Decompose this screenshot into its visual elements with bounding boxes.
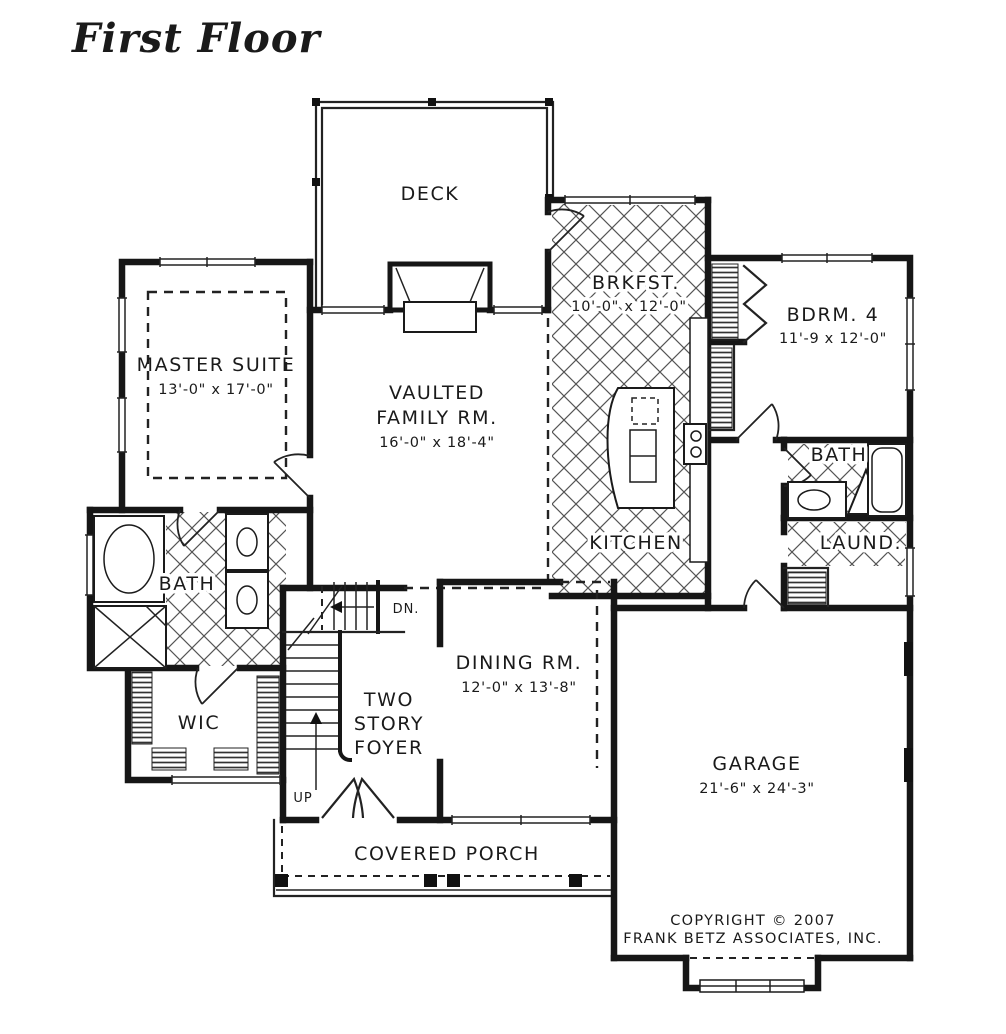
linen-shelves: [710, 348, 732, 428]
deck-post: [312, 178, 320, 186]
window: [452, 815, 590, 825]
window: [117, 398, 127, 452]
window: [160, 257, 255, 267]
porch-post: [569, 874, 582, 887]
porch-post: [424, 874, 437, 887]
wic-shelves: [214, 748, 248, 770]
garage-entry-door: [744, 580, 784, 608]
room-label-laundry: LAUND.: [820, 532, 902, 554]
window: [494, 305, 542, 315]
deck-post: [428, 98, 436, 106]
room-label-wic: WIC: [178, 712, 220, 734]
room-label-foyer-2: STORY: [354, 713, 424, 735]
fireplace: [390, 264, 490, 332]
room-dims-master-suite: 13'-0" x 17'-0": [158, 382, 273, 398]
room-label-foyer-1: TWO: [363, 689, 414, 711]
deck-post: [545, 98, 553, 106]
deck-post: [312, 98, 320, 106]
room-label-family-1: VAULTED: [389, 382, 485, 404]
stairs-down-label: DN.: [393, 602, 420, 617]
room-label-kitchen: KITCHEN: [589, 532, 683, 554]
window: [782, 253, 872, 263]
window: [905, 548, 915, 596]
room-dims-bedroom4: 11'-9 x 12'-0": [779, 331, 887, 347]
floor-plan-canvas: First Floor: [0, 0, 1006, 1034]
up-arrow: [310, 712, 322, 724]
room-dims-family: 16'-0" x 18'-4": [379, 435, 494, 451]
window: [172, 775, 280, 785]
wic-door: [195, 668, 238, 704]
room-label-family-2: FAMILY RM.: [376, 407, 498, 429]
front-double-door: [322, 779, 394, 818]
bedroom4-door: [736, 404, 779, 440]
pantry-shelves: [712, 264, 738, 340]
down-arrow: [330, 601, 342, 613]
window: [565, 195, 695, 205]
room-label-breakfast: BRKFST.: [592, 272, 680, 294]
window: [117, 298, 127, 352]
wic-shelves: [152, 748, 186, 770]
room-label-bath-upper: BATH: [811, 444, 868, 466]
wic-shelves: [257, 676, 279, 774]
window: [322, 305, 384, 315]
garage-bay-window: [700, 980, 804, 992]
hall-closet-shelves: [788, 572, 826, 604]
room-label-master-bath: BATH: [159, 573, 216, 595]
copyright-line1: COPYRIGHT © 2007: [670, 913, 836, 929]
room-dims-garage: 21'-6" x 24'-3": [699, 781, 814, 797]
room-label-master-suite: MASTER SUITE: [137, 354, 296, 376]
bifold-door: [744, 266, 766, 342]
page-title: First Floor: [71, 15, 323, 62]
stairs-up-label: UP: [293, 791, 312, 806]
garage-pilaster: [904, 748, 913, 782]
porch-post: [447, 874, 460, 887]
cooktop: [684, 424, 706, 464]
copyright-line2: FRANK BETZ ASSOCIATES, INC.: [623, 931, 883, 947]
room-dims-breakfast: 10'-0" x 12'-0": [571, 299, 686, 315]
room-label-bedroom4: BDRM. 4: [787, 304, 880, 326]
window: [905, 298, 915, 390]
porch-post: [275, 874, 288, 887]
garage-pilaster: [904, 642, 913, 676]
master-door: [274, 454, 310, 498]
room-dims-dining: 12'-0" x 13'-8": [461, 680, 576, 696]
wic-shelves: [132, 672, 152, 744]
room-label-garage: GARAGE: [712, 753, 801, 775]
room-label-deck: DECK: [401, 183, 460, 205]
room-label-foyer-3: FOYER: [354, 737, 424, 759]
room-label-dining: DINING RM.: [456, 652, 583, 674]
room-label-porch: COVERED PORCH: [354, 843, 540, 865]
